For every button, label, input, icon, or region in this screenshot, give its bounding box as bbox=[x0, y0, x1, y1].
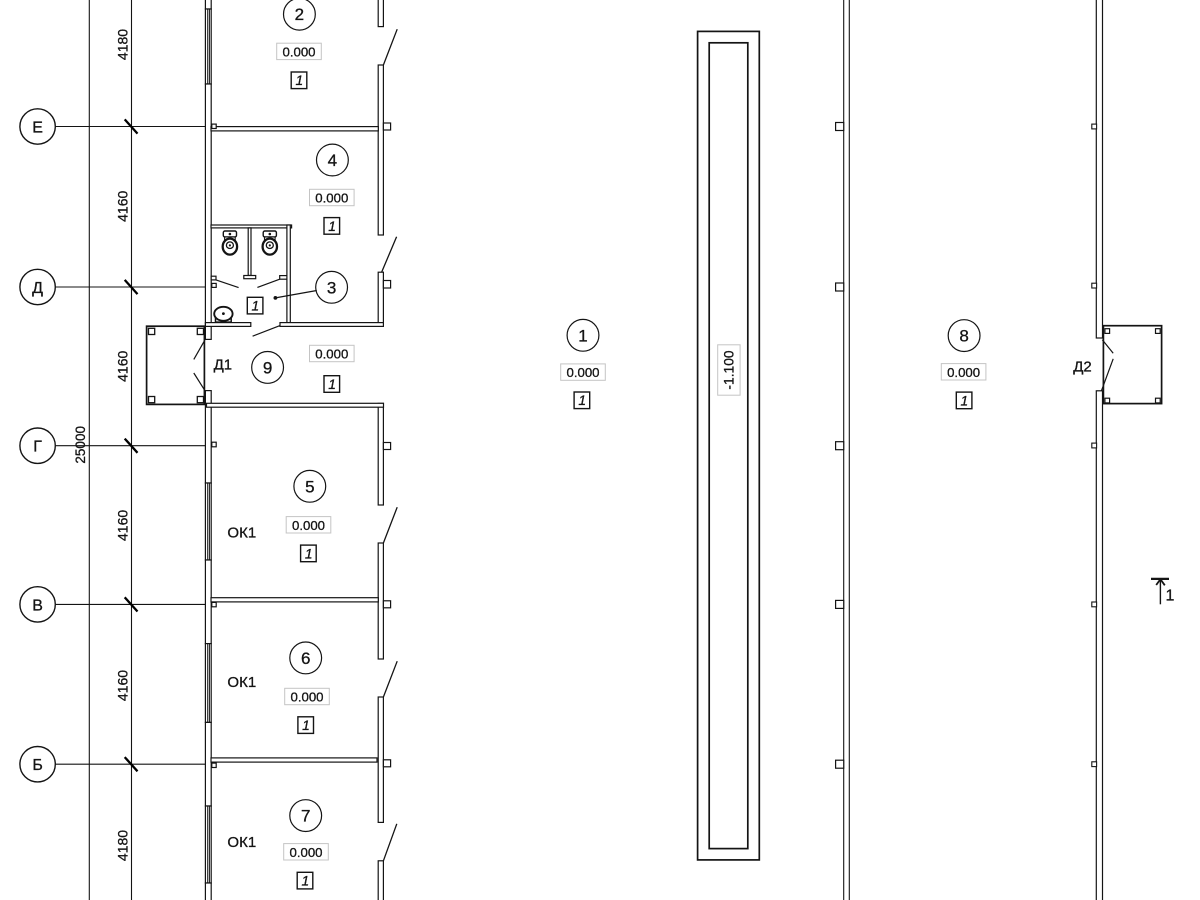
svg-text:5: 5 bbox=[305, 477, 314, 496]
svg-text:ОК1: ОК1 bbox=[227, 524, 256, 541]
svg-text:6: 6 bbox=[301, 649, 310, 668]
svg-text:1: 1 bbox=[252, 299, 260, 314]
svg-text:0.000: 0.000 bbox=[947, 365, 980, 380]
svg-text:Г: Г bbox=[33, 439, 42, 456]
svg-text:4160: 4160 bbox=[115, 351, 131, 382]
svg-text:1: 1 bbox=[1166, 588, 1175, 605]
svg-text:Д: Д bbox=[32, 280, 43, 297]
svg-text:4180: 4180 bbox=[115, 830, 131, 861]
svg-text:ОК1: ОК1 bbox=[227, 834, 256, 851]
svg-text:0.000: 0.000 bbox=[289, 845, 322, 860]
svg-text:0.000: 0.000 bbox=[315, 191, 348, 206]
svg-text:4160: 4160 bbox=[115, 510, 131, 541]
svg-text:1: 1 bbox=[328, 377, 336, 392]
svg-text:В: В bbox=[32, 597, 43, 614]
svg-text:0.000: 0.000 bbox=[566, 365, 599, 380]
svg-text:Б: Б bbox=[32, 757, 43, 774]
svg-text:25000: 25000 bbox=[73, 426, 88, 464]
svg-text:1: 1 bbox=[578, 326, 587, 345]
svg-text:0.000: 0.000 bbox=[315, 346, 348, 361]
svg-text:8: 8 bbox=[959, 327, 968, 346]
svg-text:-1.100: -1.100 bbox=[722, 350, 737, 389]
svg-text:1: 1 bbox=[578, 393, 586, 408]
svg-text:1: 1 bbox=[295, 73, 303, 88]
svg-text:3: 3 bbox=[327, 278, 336, 297]
svg-text:Д1: Д1 bbox=[214, 357, 233, 374]
svg-text:7: 7 bbox=[301, 807, 310, 826]
svg-text:1: 1 bbox=[301, 874, 309, 889]
svg-text:4160: 4160 bbox=[115, 191, 131, 222]
svg-text:Д2: Д2 bbox=[1073, 359, 1092, 376]
svg-text:2: 2 bbox=[295, 5, 304, 24]
svg-text:1: 1 bbox=[961, 393, 969, 408]
svg-text:1: 1 bbox=[302, 718, 310, 733]
svg-text:1: 1 bbox=[328, 219, 336, 234]
svg-text:4160: 4160 bbox=[115, 670, 131, 701]
svg-text:4180: 4180 bbox=[115, 29, 131, 60]
svg-text:0.000: 0.000 bbox=[290, 689, 323, 704]
svg-text:0.000: 0.000 bbox=[282, 44, 315, 59]
svg-text:0.000: 0.000 bbox=[292, 518, 325, 533]
svg-text:1: 1 bbox=[305, 546, 313, 561]
svg-text:ОК1: ОК1 bbox=[227, 674, 256, 691]
svg-text:9: 9 bbox=[263, 358, 272, 377]
svg-text:Е: Е bbox=[32, 120, 43, 137]
svg-text:4: 4 bbox=[328, 151, 337, 170]
